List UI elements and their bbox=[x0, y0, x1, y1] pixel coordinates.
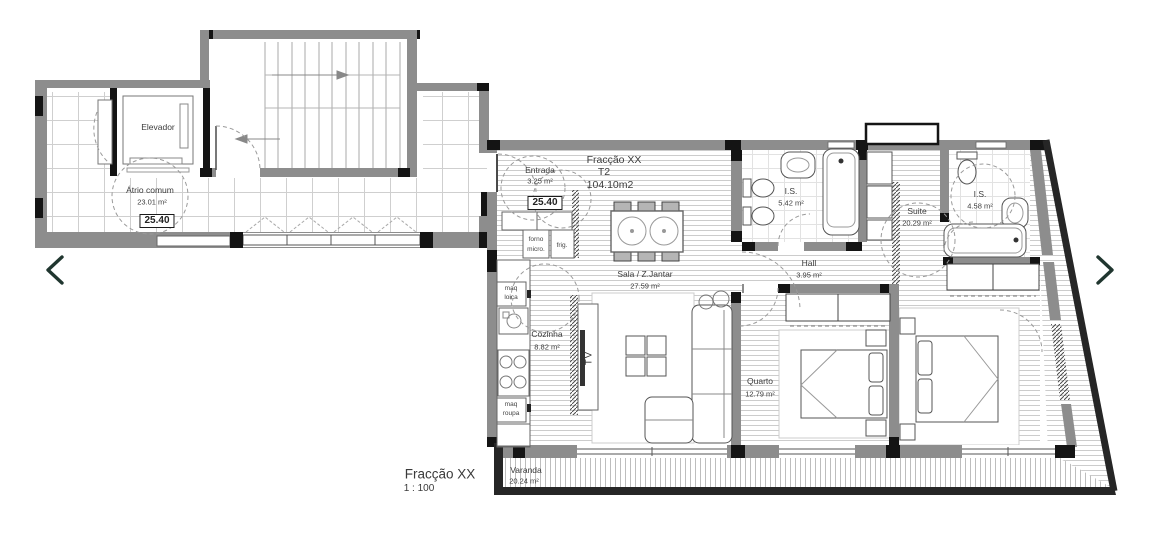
varanda-left-wall bbox=[494, 443, 503, 495]
window-left-2 bbox=[35, 198, 43, 218]
nightstand bbox=[866, 420, 886, 436]
bathtub bbox=[823, 149, 859, 235]
washbasin bbox=[781, 152, 815, 178]
label-washer-1: maq bbox=[505, 402, 518, 409]
base-cabinet bbox=[497, 424, 530, 446]
unit-name: Fracção XX bbox=[587, 155, 642, 166]
nightstand bbox=[866, 330, 886, 346]
toilet bbox=[743, 179, 774, 197]
quarto-furniture bbox=[786, 294, 890, 436]
dining-table bbox=[611, 211, 683, 252]
dressing-closets bbox=[867, 152, 892, 240]
wall-hatch-tv bbox=[570, 295, 578, 415]
bathroom-window-2 bbox=[976, 142, 1006, 148]
label-cozinha-area: 8.82 m² bbox=[534, 343, 559, 351]
shaft-side-cabinet bbox=[98, 100, 112, 164]
label-atrio-area: 23.01 m² bbox=[137, 198, 167, 206]
next-button[interactable] bbox=[1094, 252, 1122, 288]
label-is2-name: I.S. bbox=[974, 190, 987, 199]
label-oven-2: micro. bbox=[527, 247, 545, 254]
label-dishwasher-1: maq bbox=[505, 286, 518, 293]
plan-title: Fracção XX bbox=[405, 467, 476, 481]
label-tv: TV bbox=[584, 351, 594, 365]
label-fridge: frig. bbox=[557, 243, 568, 250]
label-washer-2: roupa bbox=[503, 411, 520, 418]
outer-bottom-wall bbox=[494, 487, 1116, 495]
floor-plan-viewer: Elevador Átrio comum 23.01 m² 25.40 Entr… bbox=[0, 0, 1150, 557]
label-varanda-name: Varanda bbox=[510, 466, 542, 475]
bathtub-2 bbox=[944, 224, 1026, 257]
label-oven-1: forno bbox=[529, 237, 544, 244]
bathroom-window-1 bbox=[828, 142, 854, 148]
label-is1-name: I.S. bbox=[785, 187, 798, 196]
oven-microwave bbox=[523, 230, 549, 258]
planter-window bbox=[157, 236, 230, 246]
elevator-door bbox=[127, 168, 189, 172]
label-dishwasher-2: loiça bbox=[504, 295, 517, 302]
label-suite-name: Suite bbox=[907, 207, 926, 216]
quarto-wardrobe bbox=[786, 294, 890, 326]
label-entrada-area: 3.25 m² bbox=[527, 177, 552, 185]
nightstand bbox=[900, 424, 915, 440]
label-is2-area: 4.58 m² bbox=[967, 202, 992, 210]
label-hall-name: Hall bbox=[802, 259, 817, 268]
floor-plan-drawing bbox=[0, 0, 1150, 557]
unit-type: T2 bbox=[598, 167, 610, 178]
label-hall-area: 3.95 m² bbox=[796, 271, 821, 279]
label-sala-name: Sala / Z.Jantar bbox=[617, 270, 672, 279]
label-sala-area: 27.59 m² bbox=[630, 282, 660, 290]
level-badge-entrada: 25.40 bbox=[527, 196, 562, 210]
label-quarto-name: Quarto bbox=[747, 377, 773, 386]
label-varanda-area: 20.24 m² bbox=[509, 477, 539, 485]
label-suite-area: 20.29 m² bbox=[902, 219, 932, 227]
window-left-1 bbox=[35, 96, 43, 116]
unit-total-area: 104.10m2 bbox=[587, 180, 634, 191]
label-elevador: Elevador bbox=[141, 123, 175, 132]
plan-scale: 1 : 100 bbox=[404, 484, 435, 494]
nightstand bbox=[900, 318, 915, 334]
label-entrada-name: Entrada bbox=[525, 166, 555, 175]
prev-button[interactable] bbox=[42, 252, 70, 288]
label-quarto-area: 12.79 m² bbox=[745, 390, 775, 398]
label-atrio-name: Átrio comum bbox=[126, 186, 174, 195]
level-badge-atrio: 25.40 bbox=[139, 214, 174, 228]
wall-hatch-suite bbox=[892, 182, 900, 284]
label-cozinha-name: Cozinha bbox=[531, 330, 562, 339]
closet-bump bbox=[866, 124, 938, 144]
bidet bbox=[743, 207, 774, 225]
label-is1-area: 5.42 m² bbox=[778, 199, 803, 207]
